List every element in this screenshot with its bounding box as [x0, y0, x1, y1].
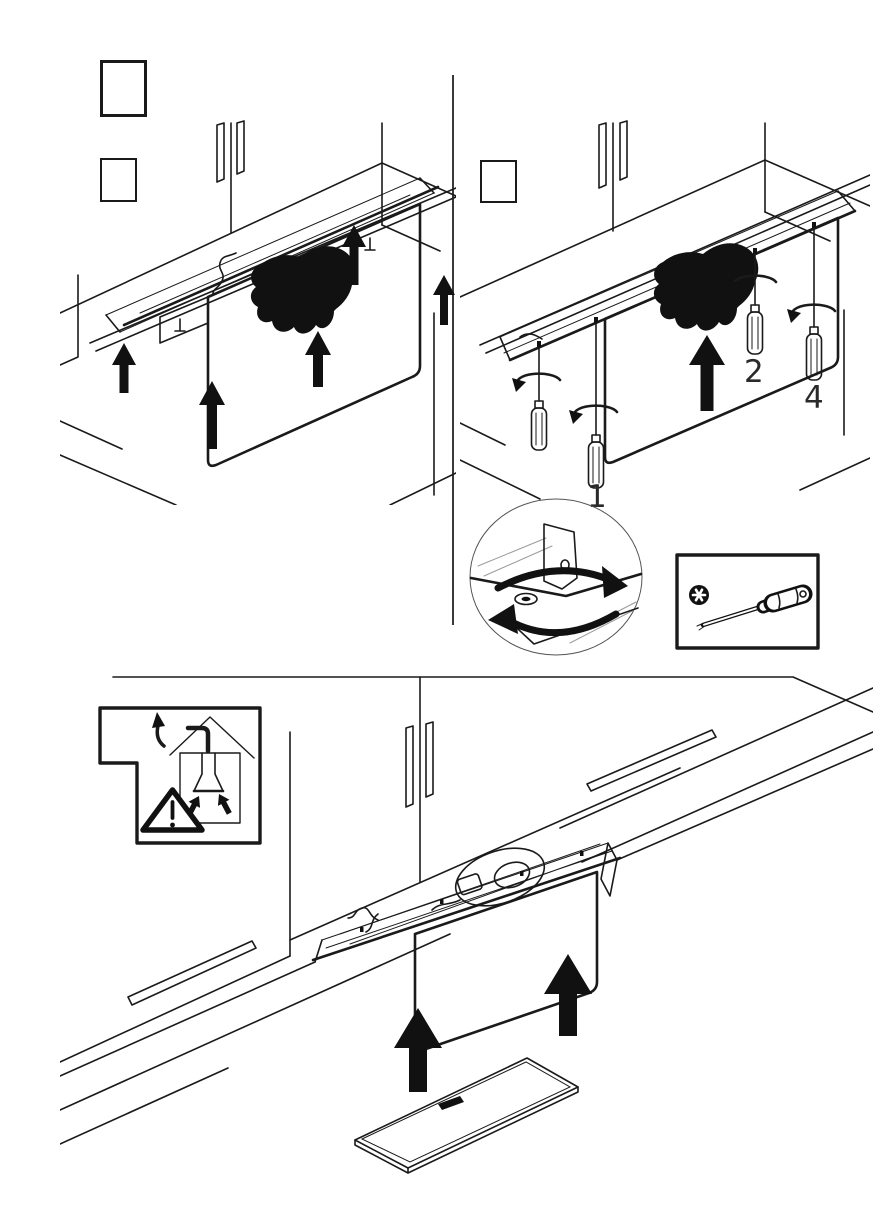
screw-order-label: 4 — [804, 380, 824, 416]
installation-instruction-sheet: 1 2 4 — [0, 0, 873, 1225]
illustration-fasten-screws: 1 2 4 — [460, 75, 870, 515]
detail-circle-view — [466, 496, 646, 661]
illustration-attach-panel — [60, 672, 873, 1207]
hand-press-icon — [251, 246, 355, 333]
screwdriver-icon — [512, 348, 560, 450]
rotation-arrow-icon — [569, 406, 617, 424]
cabinet-walls — [60, 677, 873, 1144]
door-handle-strip — [128, 941, 256, 1005]
torx-screw-icon — [689, 585, 709, 605]
hand-press-icon — [654, 243, 758, 330]
filter-panel — [355, 1058, 578, 1173]
hood-frame — [313, 837, 620, 962]
torx-screwdriver-icon — [697, 589, 806, 630]
hood-body — [160, 204, 420, 466]
rotation-arrow-icon — [498, 566, 628, 598]
rotation-arrow-icon — [787, 305, 835, 323]
door-handle-strip — [587, 730, 716, 791]
up-arrow-icons — [394, 954, 592, 1092]
up-arrow-icon — [112, 343, 136, 393]
screwdriver-icon: 1 — [569, 323, 617, 515]
illustration-insert-hood — [60, 75, 456, 505]
screw-order-label: 2 — [744, 354, 764, 390]
mounting-bracket — [544, 524, 577, 589]
up-arrow-icon — [199, 381, 225, 449]
up-arrow-icon — [689, 335, 725, 411]
screwdriver-icon: 4 — [787, 228, 835, 416]
rotation-arrow-icon — [512, 374, 560, 392]
up-arrow-icon — [394, 1008, 442, 1092]
up-arrow-icon — [433, 275, 455, 325]
hood-front-panel — [208, 204, 420, 466]
up-arrow-icon — [305, 331, 331, 387]
tool-callout-box — [675, 553, 820, 650]
